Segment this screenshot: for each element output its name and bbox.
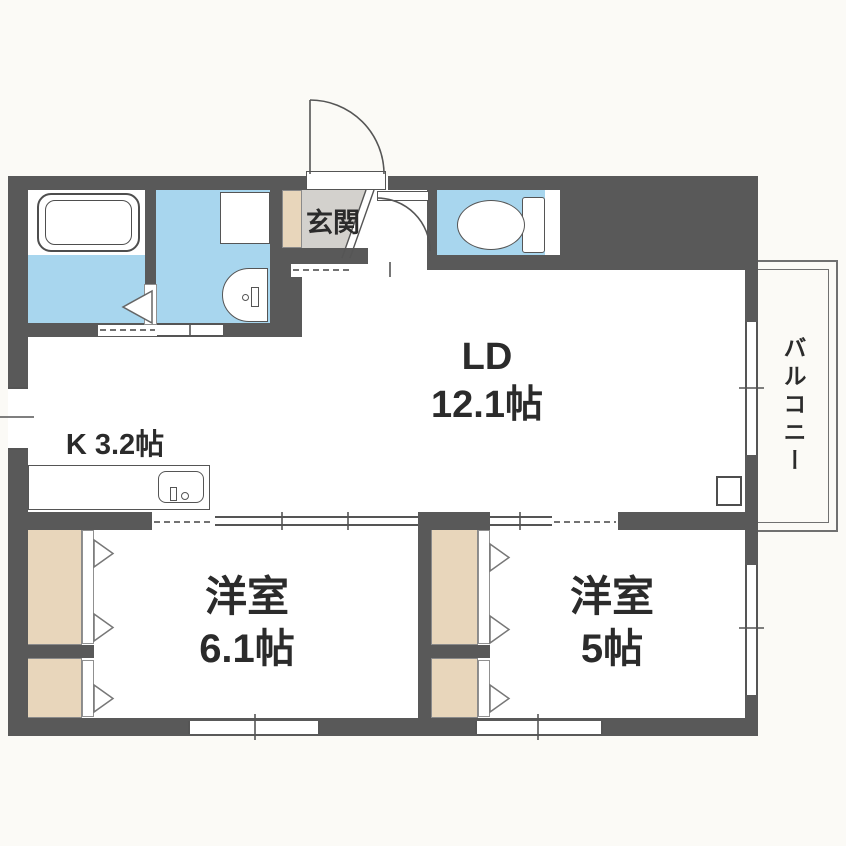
- wall-washroom-right: [270, 190, 282, 248]
- bedroom-left-size-label: 6.1帖: [157, 620, 337, 670]
- closet-mid-top: [431, 528, 478, 645]
- sliding-door-sanitary: [98, 325, 157, 336]
- wall-block-top-right: [560, 176, 758, 270]
- wall-bedroom-divider: [418, 512, 431, 736]
- closet-door-strip: [478, 530, 490, 644]
- wall-closet-divider-left: [26, 645, 94, 658]
- bedroom-left-name-label: 洋室: [157, 568, 337, 618]
- entrance-door-arc: [310, 100, 384, 174]
- wall-top-right: [388, 176, 560, 190]
- kitchen-label: K 3.2帖: [30, 424, 200, 460]
- wall-entrance-column: [270, 248, 302, 337]
- bathroom-floor: [28, 255, 145, 323]
- sliding-door-entrance: [291, 264, 353, 277]
- kitchen-faucet-knob: [181, 492, 189, 500]
- wall-closet-divider-mid: [431, 645, 490, 658]
- sliding-partition-bedroom-right: [490, 516, 552, 526]
- washroom-door-opening: [157, 323, 223, 337]
- balcony-label: バルコニー: [770, 296, 816, 516]
- wall-mid-left: [28, 512, 152, 530]
- floor-plan: 玄関 LD 12.1帖 K 3.2帖 洋室 6.1帖 洋室 5帖 バルコニー: [0, 0, 846, 846]
- closet-door-strip: [478, 660, 490, 717]
- window-bedroom-right-east: [745, 565, 758, 695]
- toilet-bowl: [457, 200, 525, 250]
- toilet-tank: [522, 197, 545, 253]
- wall-entrance-bottom: [300, 248, 368, 264]
- closet-left-bottom: [26, 658, 82, 718]
- wall-mid-right: [618, 512, 745, 530]
- washbasin-tap: [251, 287, 259, 307]
- sliding-door-kitchen: [152, 517, 216, 528]
- bedroom-right-name-label: 洋室: [522, 568, 702, 618]
- kitchen-faucet: [170, 487, 177, 501]
- wall-bath-divider: [145, 190, 156, 293]
- washbasin-knob: [242, 294, 249, 301]
- wall-bottom: [8, 718, 758, 736]
- entrance-door-leaf: [306, 171, 386, 190]
- window-bedroom-right-south: [475, 721, 603, 734]
- hall-door-leaf: [377, 191, 429, 201]
- entrance-label: 玄関: [296, 203, 370, 237]
- washing-machine-space: [220, 192, 270, 244]
- bedroom-right-size-label: 5帖: [522, 620, 702, 670]
- window-bedroom-left-south: [188, 721, 320, 734]
- closet-mid-bottom: [431, 658, 478, 718]
- closet-door-strip: [82, 660, 94, 717]
- bath-door-strip: [144, 284, 157, 325]
- pipe-space-box: [716, 476, 742, 506]
- bathtub-inner: [45, 200, 132, 245]
- ld-size-label: 12.1帖: [407, 378, 567, 422]
- sliding-door-bedroom-right: [552, 517, 618, 528]
- wall-toilet-bottom: [427, 255, 560, 270]
- wall-left: [8, 176, 28, 736]
- closet-door-strip: [82, 530, 94, 644]
- window-kitchen-left: [8, 387, 28, 450]
- sliding-partition-ld: [215, 516, 418, 526]
- closet-left-top: [26, 528, 82, 645]
- wall-top-left: [8, 176, 308, 190]
- window-ld-balcony: [745, 322, 758, 455]
